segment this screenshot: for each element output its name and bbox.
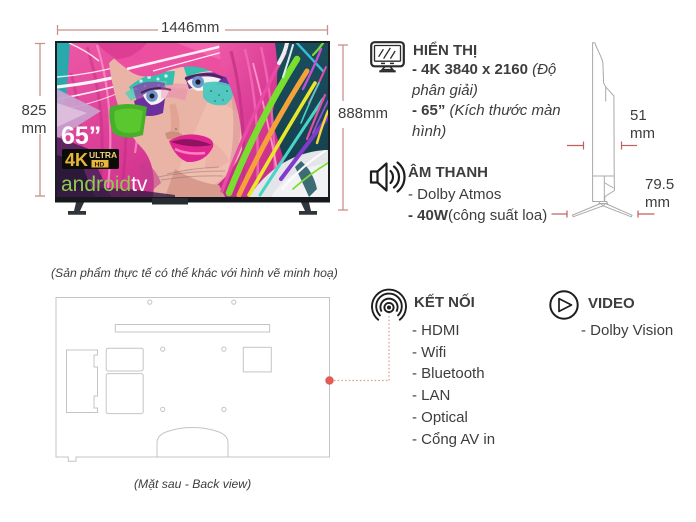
svg-text:HD: HD [95,162,105,169]
svg-text:ULTRA: ULTRA [89,150,117,160]
svg-text:androidtv: androidtv [61,173,148,196]
svg-text:4K: 4K [65,150,88,170]
svg-text:65”: 65” [61,122,101,150]
